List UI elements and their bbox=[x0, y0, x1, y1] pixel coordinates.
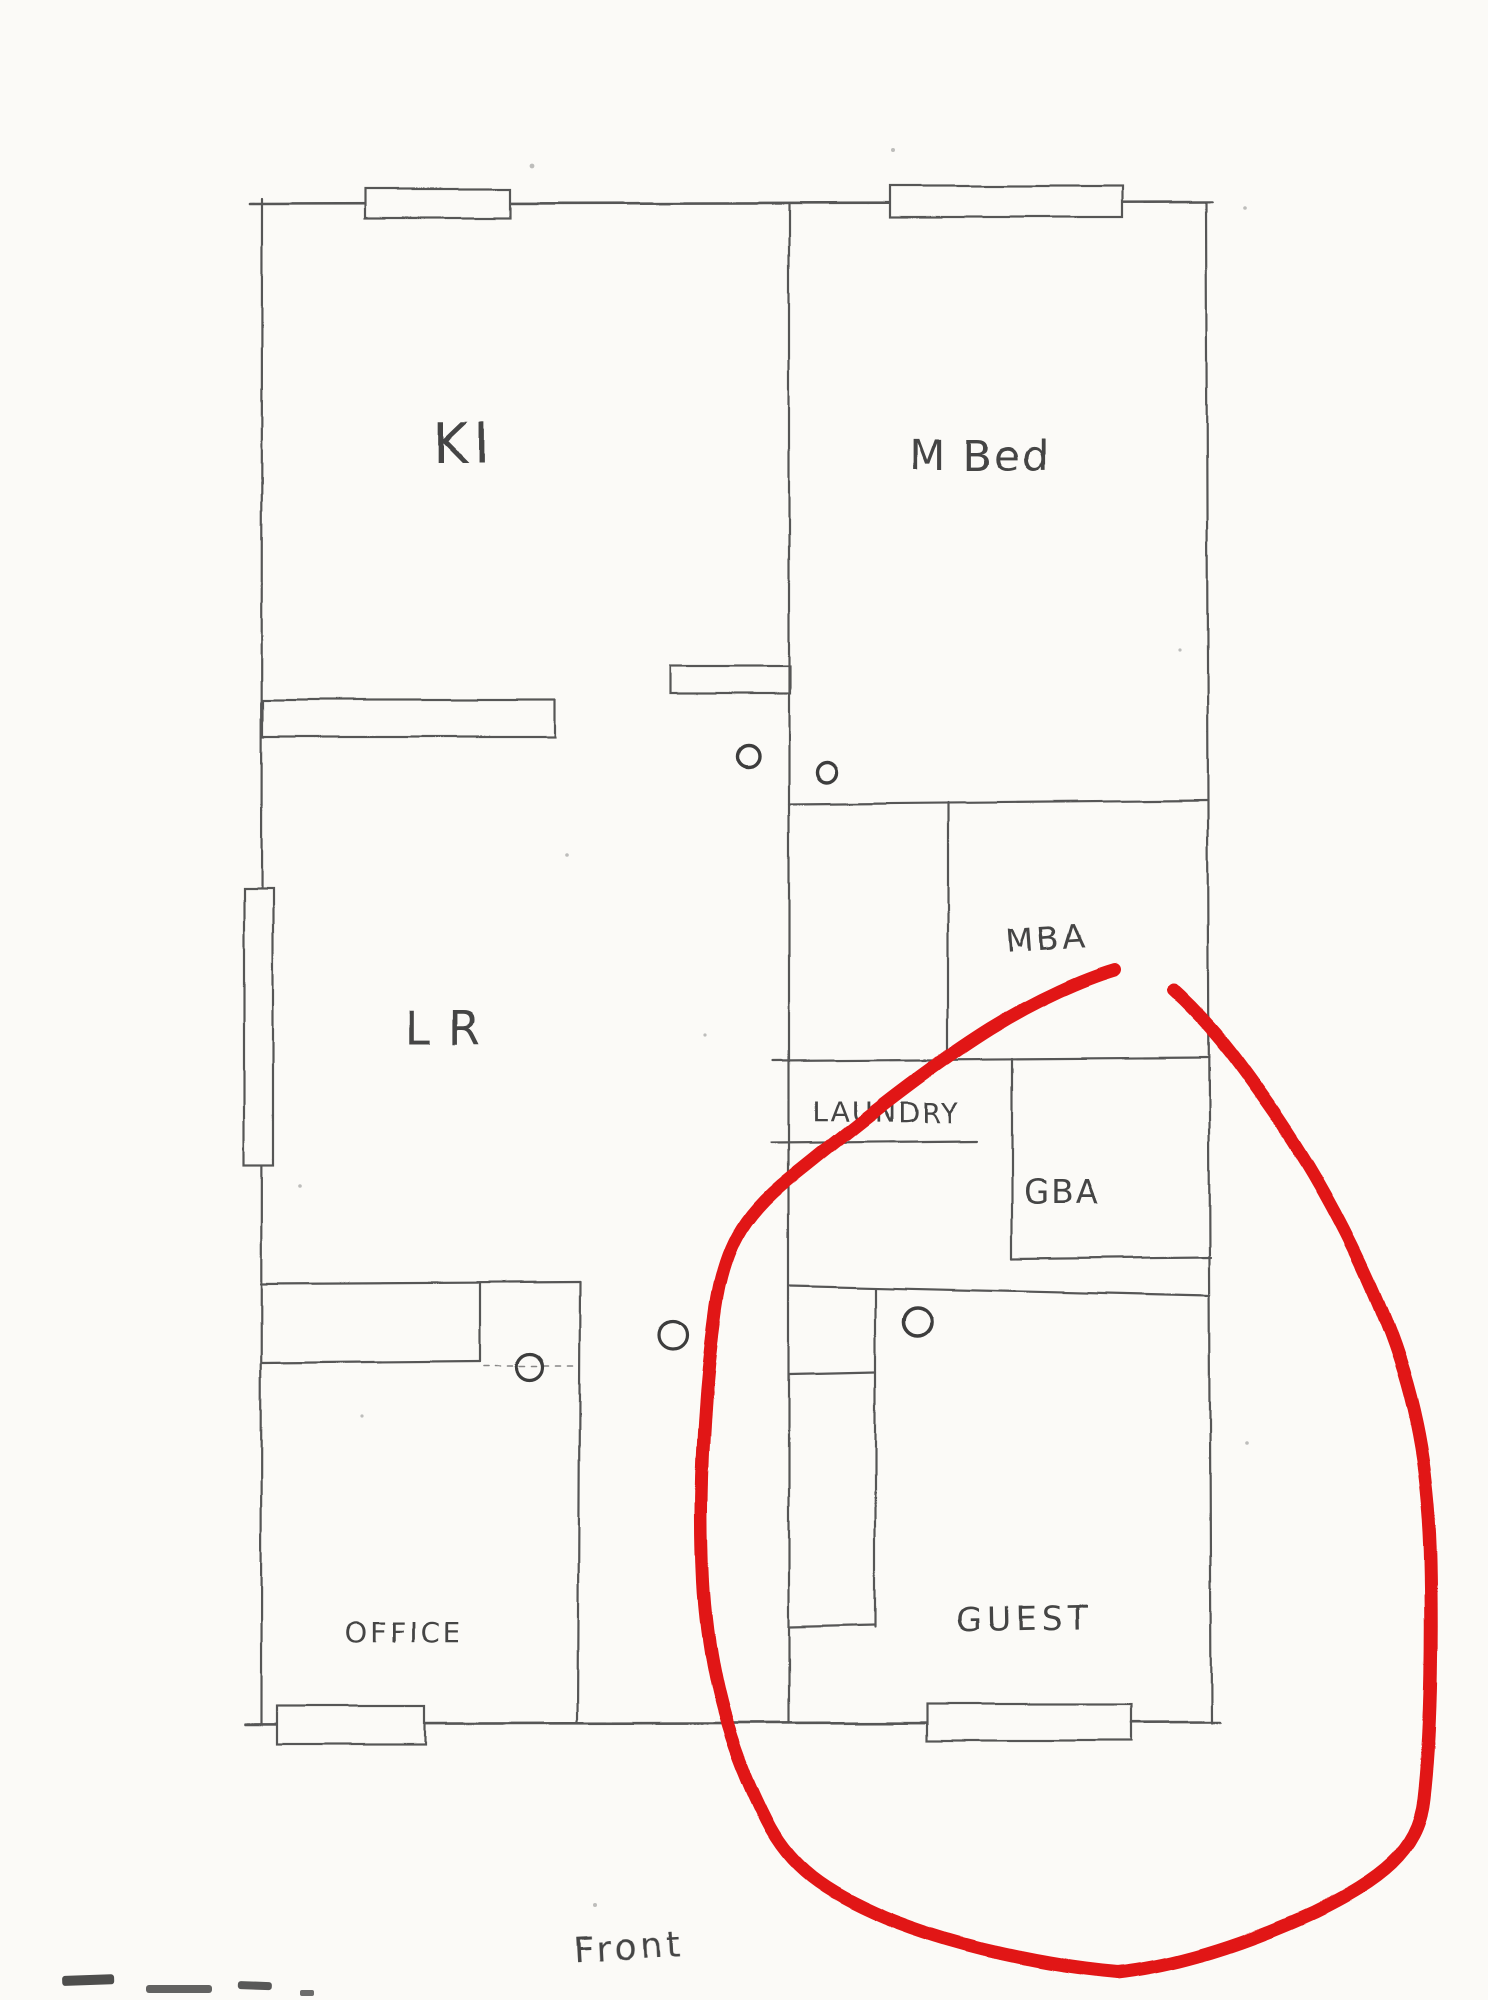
window-marker-top-left bbox=[365, 189, 510, 218]
window-marker-left bbox=[244, 889, 273, 1166]
room-label-master-bedroom: M Bed bbox=[910, 431, 1051, 480]
room-label-guest-bath: GBA bbox=[1024, 1172, 1101, 1211]
scanned-floorplan-page: KI M Bed LR MBA LAUNDRY GBA OFFICE GUEST… bbox=[0, 0, 1488, 2000]
window-marker-top-right bbox=[890, 186, 1123, 217]
room-label-living-room: LR bbox=[405, 1001, 499, 1055]
room-label-guest-bedroom: GUEST bbox=[955, 1598, 1092, 1639]
front-label: Front bbox=[573, 1924, 686, 1971]
window-marker-bottom-office bbox=[277, 1706, 425, 1744]
room-label-office: OFFICE bbox=[345, 1616, 463, 1649]
room-label-kitchen: KI bbox=[432, 412, 495, 475]
room-label-master-bath: MBA bbox=[1005, 916, 1090, 961]
paper-background bbox=[0, 0, 1488, 2000]
window-marker-bottom-guest bbox=[927, 1704, 1131, 1741]
floorplan-canvas: KI M Bed LR MBA LAUNDRY GBA OFFICE GUEST… bbox=[0, 0, 1488, 2000]
